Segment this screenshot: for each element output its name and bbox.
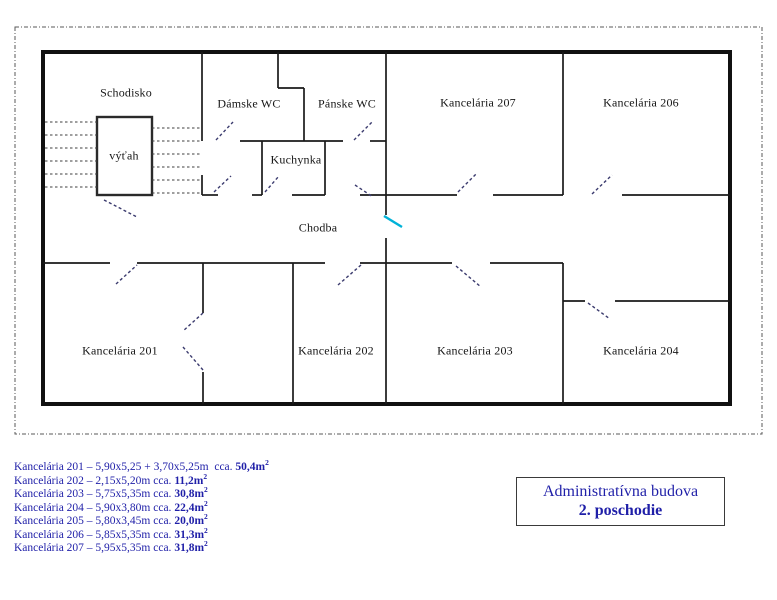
room-label-vytah: výťah <box>109 149 138 164</box>
legend-item-202: Kancelária 202 – 2,15x5,20m cca. 11,2m2 <box>14 475 269 489</box>
legend-item-sup: 2 <box>204 485 208 494</box>
legend-item-area: 30,8m <box>174 488 204 500</box>
corridor-door-cyan <box>384 216 402 227</box>
legend-item-sup: 2 <box>204 526 208 535</box>
legend-item-area: 20,0m <box>174 515 204 527</box>
room-label-chodba: Chodba <box>299 221 338 236</box>
legend-item-206: Kancelária 206 – 5,85x5,35m cca. 31,3m2 <box>14 529 269 543</box>
legend-item-sup: 2 <box>203 472 207 481</box>
title-floor-name: 2. poschodie <box>579 502 663 520</box>
floor-plan-page: Schodisko výťah Dámske WC Pánske WC Kuch… <box>0 0 777 600</box>
legend-item-area: 11,2m <box>174 475 203 487</box>
room-label-damske-wc: Dámske WC <box>217 97 280 112</box>
legend-item-text: Kancelária 205 – 5,80x3,45m cca. <box>14 515 174 527</box>
room-label-kancelaria-202: Kancelária 202 <box>298 344 374 359</box>
legend-item-sup: 2 <box>204 539 208 548</box>
legend-item-201: Kancelária 201 – 5,90x5,25 + 3,70x5,25m … <box>14 461 269 475</box>
legend-item-sup: 2 <box>265 458 269 467</box>
title-building-name: Administratívna budova <box>543 483 698 501</box>
room-label-kancelaria-203: Kancelária 203 <box>437 344 513 359</box>
legend-item-207: Kancelária 207 – 5,95x5,35m cca. 31,8m2 <box>14 542 269 556</box>
room-label-panske-wc: Pánske WC <box>318 97 376 112</box>
legend-item-text: Kancelária 204 – 5,90x3,80m cca. <box>14 502 174 514</box>
legend-item-area: 31,3m <box>174 529 204 541</box>
room-label-kancelaria-206: Kancelária 206 <box>603 96 679 111</box>
title-box: Administratívna budova 2. poschodie <box>516 477 725 526</box>
legend-item-204: Kancelária 204 – 5,90x3,80m cca. 22,4m2 <box>14 502 269 516</box>
legend-item-text: Kancelária 202 – 2,15x5,20m cca. <box>14 475 174 487</box>
legend: Kancelária 201 – 5,90x5,25 + 3,70x5,25m … <box>14 461 269 556</box>
legend-item-area: 22,4m <box>174 502 204 514</box>
room-label-kancelaria-204: Kancelária 204 <box>603 344 679 359</box>
legend-item-sup: 2 <box>204 499 208 508</box>
room-label-kancelaria-207: Kancelária 207 <box>440 96 516 111</box>
door-swing-marks <box>104 122 612 370</box>
legend-item-text: Kancelária 203 – 5,75x5,35m cca. <box>14 488 174 500</box>
room-label-kuchynka: Kuchynka <box>271 153 322 168</box>
legend-item-area: 31,8m <box>174 542 204 554</box>
legend-item-text: Kancelária 206 – 5,85x5,35m cca. <box>14 529 174 541</box>
legend-item-205: Kancelária 205 – 5,80x3,45m cca. 20,0m2 <box>14 515 269 529</box>
legend-item-203: Kancelária 203 – 5,75x5,35m cca. 30,8m2 <box>14 488 269 502</box>
legend-item-area: 50,4m <box>235 461 265 473</box>
room-label-schodisko: Schodisko <box>100 86 152 101</box>
legend-item-sup: 2 <box>204 512 208 521</box>
room-label-kancelaria-201: Kancelária 201 <box>82 344 158 359</box>
legend-item-text: Kancelária 207 – 5,95x5,35m cca. <box>14 542 174 554</box>
